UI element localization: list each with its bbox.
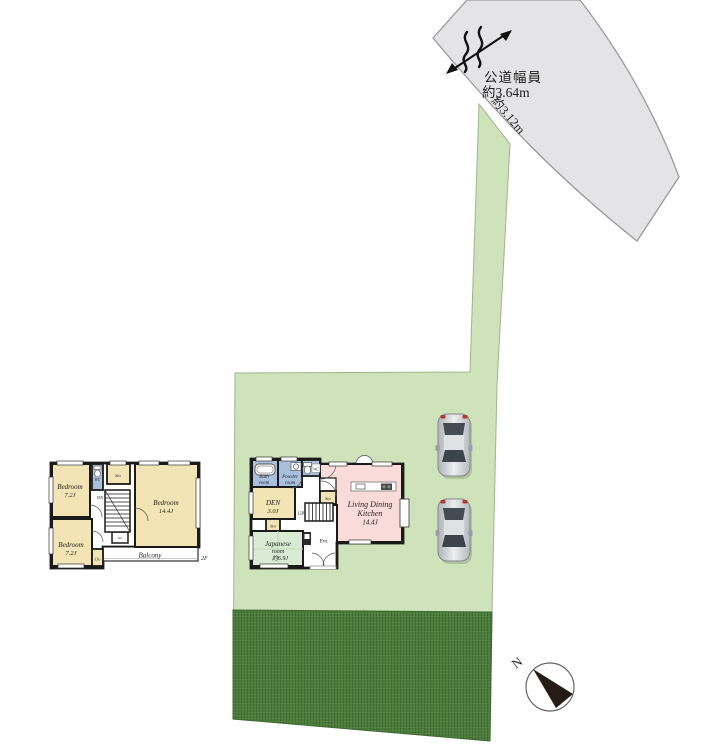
site-plan-svg: 公道幅員 約3.64m 約3.12m xyxy=(0,0,720,750)
road-width-label-line2: 約3.64m xyxy=(482,85,530,100)
den-label-2: 3.0J xyxy=(266,508,279,515)
dn-label: DN xyxy=(96,495,104,500)
ldk-label-1: Living Dining xyxy=(347,500,393,509)
site-plan-canvas: 公道幅員 約3.64m 約3.12m xyxy=(0,0,720,750)
bedroom-sw-label-2: 7.2J xyxy=(65,550,77,557)
sto-hall-label: Sto xyxy=(325,496,332,501)
kitchen-sink xyxy=(356,484,365,489)
bathtub-icon xyxy=(255,464,275,475)
bedroom-e-label-1: Bedroom xyxy=(153,499,178,507)
bedroom-nw-label-2: 7.2J xyxy=(64,492,76,499)
ldk-label-3: 14.4J xyxy=(362,519,378,527)
toilet-icon-2f xyxy=(94,466,101,477)
powder-label-2: room xyxy=(285,481,296,486)
stairs-1f xyxy=(305,503,333,521)
wc-label-1f: WC xyxy=(313,468,319,472)
car-2 xyxy=(436,499,473,564)
north-label: N xyxy=(509,653,526,671)
sto-top-label-2f: Sto xyxy=(115,473,122,478)
japanese-label-3: 約6.9J xyxy=(272,554,289,562)
sto-mid-label-2f: Sto xyxy=(118,536,123,540)
wc-label-2f: WC xyxy=(95,478,101,482)
stairs-2f xyxy=(105,490,130,532)
sto-den-label: Sto xyxy=(270,524,277,529)
compass: N xyxy=(509,653,574,711)
ent-label: Ent. xyxy=(318,539,328,545)
kitchen-counter xyxy=(351,482,396,491)
clo-label: Clo xyxy=(95,557,101,562)
car-1 xyxy=(436,414,473,479)
ldk-label-2: Kitchen xyxy=(357,509,383,518)
bath-label-2: room xyxy=(259,481,270,486)
bedroom-nw-label-1: Bedroom xyxy=(57,483,82,491)
garden-area xyxy=(233,610,492,741)
road-area xyxy=(433,0,679,241)
up-label: UP xyxy=(298,512,305,517)
porch-step xyxy=(310,566,336,570)
bedroom-e-label-2: 14.4J xyxy=(159,508,174,515)
floor-2f-label: 2F xyxy=(201,556,208,562)
closet-hall xyxy=(320,478,336,491)
powder-label-1: Powder xyxy=(281,475,298,480)
shoe-cabinet-door xyxy=(305,534,310,539)
road-width-label-line1: 公道幅員 xyxy=(484,70,542,85)
bedroom-sw-label-1: Bedroom xyxy=(58,541,83,549)
bath-label-1: Bath xyxy=(259,475,269,480)
bay-window xyxy=(400,499,409,527)
japanese-label-2: room xyxy=(272,549,285,555)
japanese-label-1: Japanese xyxy=(265,540,291,548)
floor-plan-2f: Bedroom 7.2J WC Sto DN Bedroom 14.4J Bed… xyxy=(49,461,208,568)
sink-icon xyxy=(291,463,301,471)
den-label-1: DEN xyxy=(265,499,280,507)
balcony-label: Balcony xyxy=(139,552,163,560)
